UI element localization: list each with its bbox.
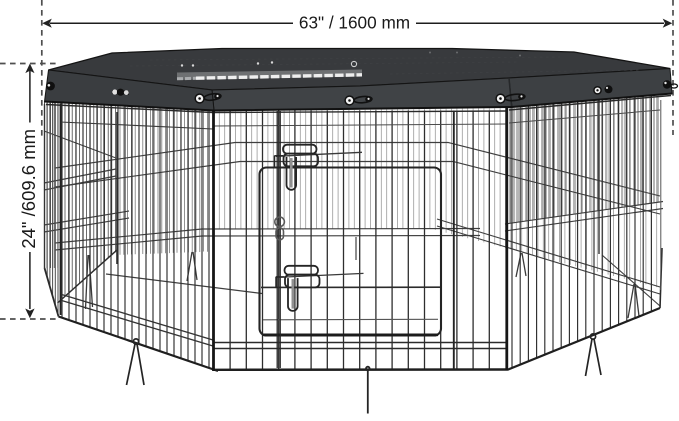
svg-text:24" /609.6 mm: 24" /609.6 mm — [18, 129, 39, 249]
svg-text:63" / 1600 mm: 63" / 1600 mm — [299, 13, 410, 33]
